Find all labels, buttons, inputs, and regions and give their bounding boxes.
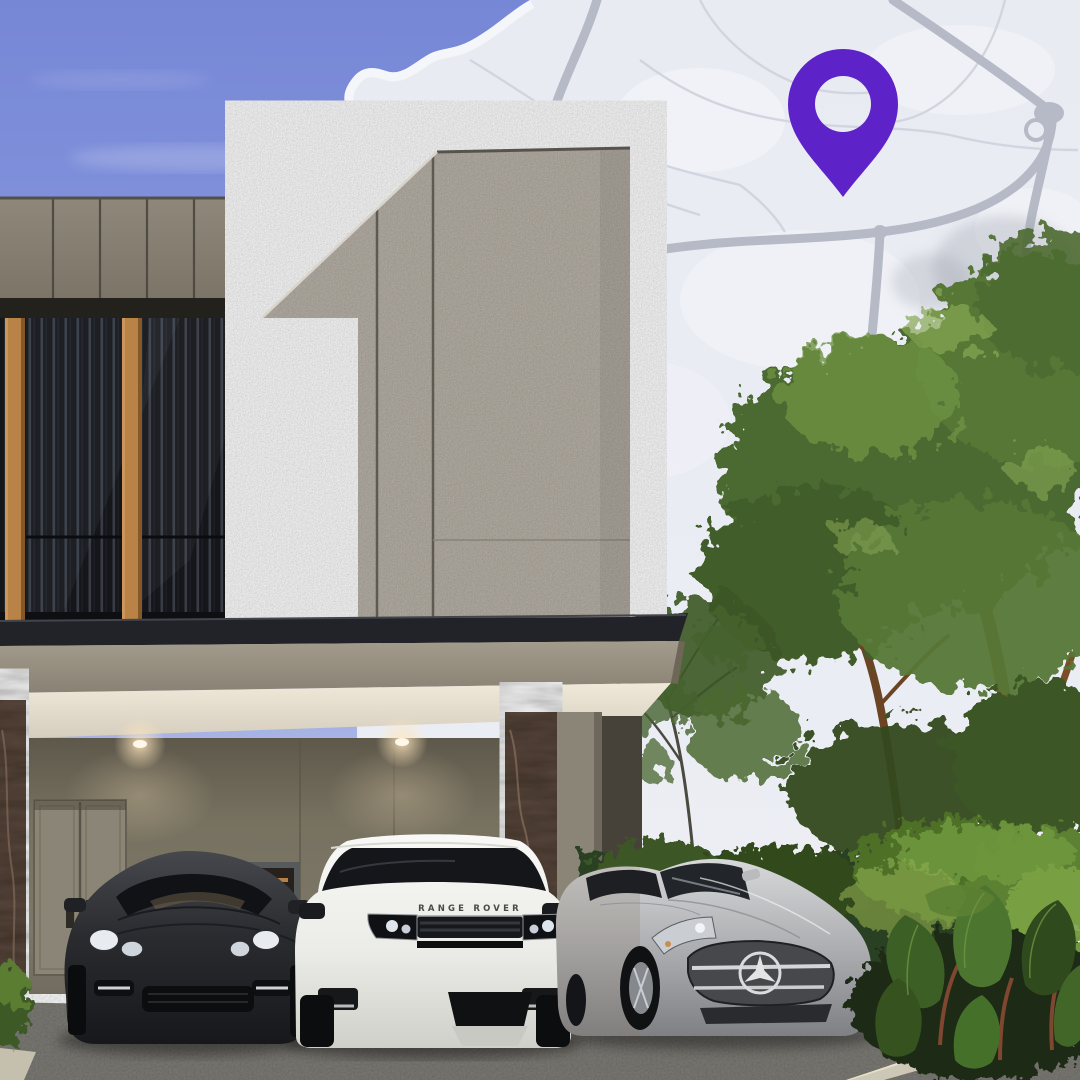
cloud [30,71,210,89]
porsche-mirror [64,898,86,912]
range-rover-wheel [300,995,334,1047]
range-rover-mirror [299,903,325,919]
mercedes-rear-wheel [566,974,586,1026]
cloud [70,145,330,171]
porsche-grille [142,986,254,1012]
range-rover-badge-text: RANGE ROVER [418,904,522,914]
property-hero-image: RANGE ROVER [0,0,1080,1080]
louver-screen [0,318,360,620]
range-rover-intake [448,992,532,1026]
range-rover-grille [417,916,523,938]
range-rover-car: RANGE ROVER [295,834,572,1048]
porsche-wheel [68,965,86,1035]
